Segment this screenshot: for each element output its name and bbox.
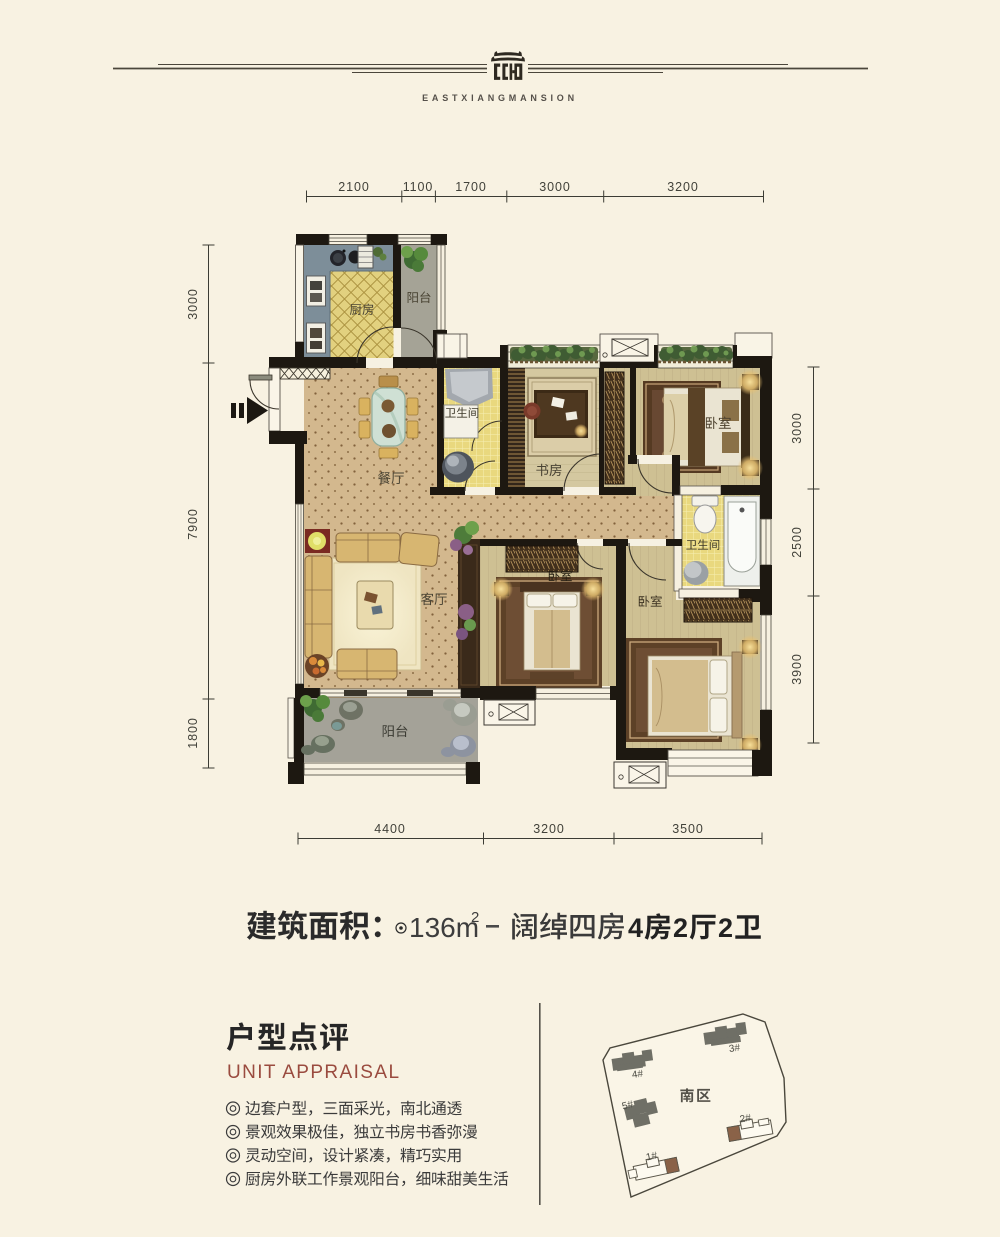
svg-text:3000: 3000 (186, 288, 200, 319)
svg-text:3000: 3000 (790, 412, 804, 443)
svg-text:136m: 136m (409, 912, 479, 943)
svg-text:4400: 4400 (374, 822, 405, 836)
svg-text:1700: 1700 (455, 180, 486, 194)
svg-text:1100: 1100 (403, 180, 433, 194)
svg-text:1800: 1800 (186, 717, 200, 748)
svg-text:3500: 3500 (672, 822, 703, 836)
svg-text:2: 2 (718, 913, 733, 943)
svg-text:4: 4 (628, 913, 643, 943)
svg-text:3#: 3# (728, 1042, 741, 1055)
svg-text:2: 2 (471, 909, 479, 926)
svg-text:3200: 3200 (533, 822, 564, 836)
svg-text:UNIT APPRAISAL: UNIT APPRAISAL (227, 1062, 400, 1083)
svg-text:7900: 7900 (186, 508, 200, 539)
svg-text:2100: 2100 (338, 180, 369, 194)
svg-text:2: 2 (673, 913, 688, 943)
svg-text:3200: 3200 (667, 180, 698, 194)
svg-text:4#: 4# (631, 1068, 644, 1081)
svg-text:2500: 2500 (790, 526, 804, 557)
svg-text:3000: 3000 (539, 180, 570, 194)
svg-text:3900: 3900 (790, 653, 804, 684)
svg-text:EASTXIANGMANSION: EASTXIANGMANSION (422, 93, 578, 103)
